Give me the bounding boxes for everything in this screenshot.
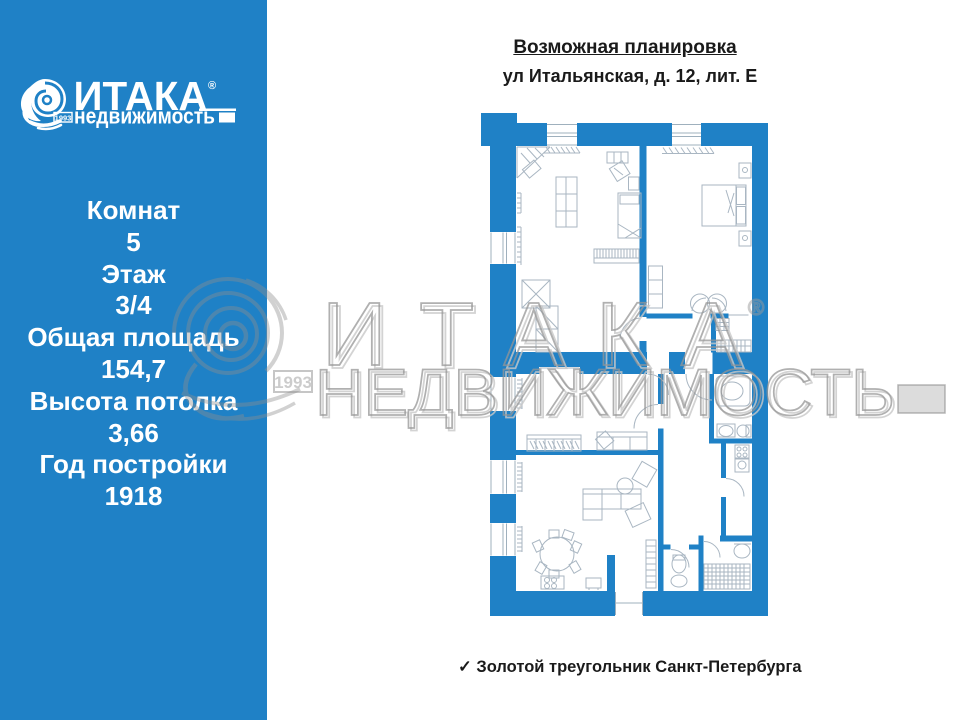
svg-text:НЕДВИЖИМОСТЬ: НЕДВИЖИМОСТЬ [315,355,895,429]
svg-text:1993: 1993 [274,373,312,392]
svg-text:®: ® [748,295,764,320]
